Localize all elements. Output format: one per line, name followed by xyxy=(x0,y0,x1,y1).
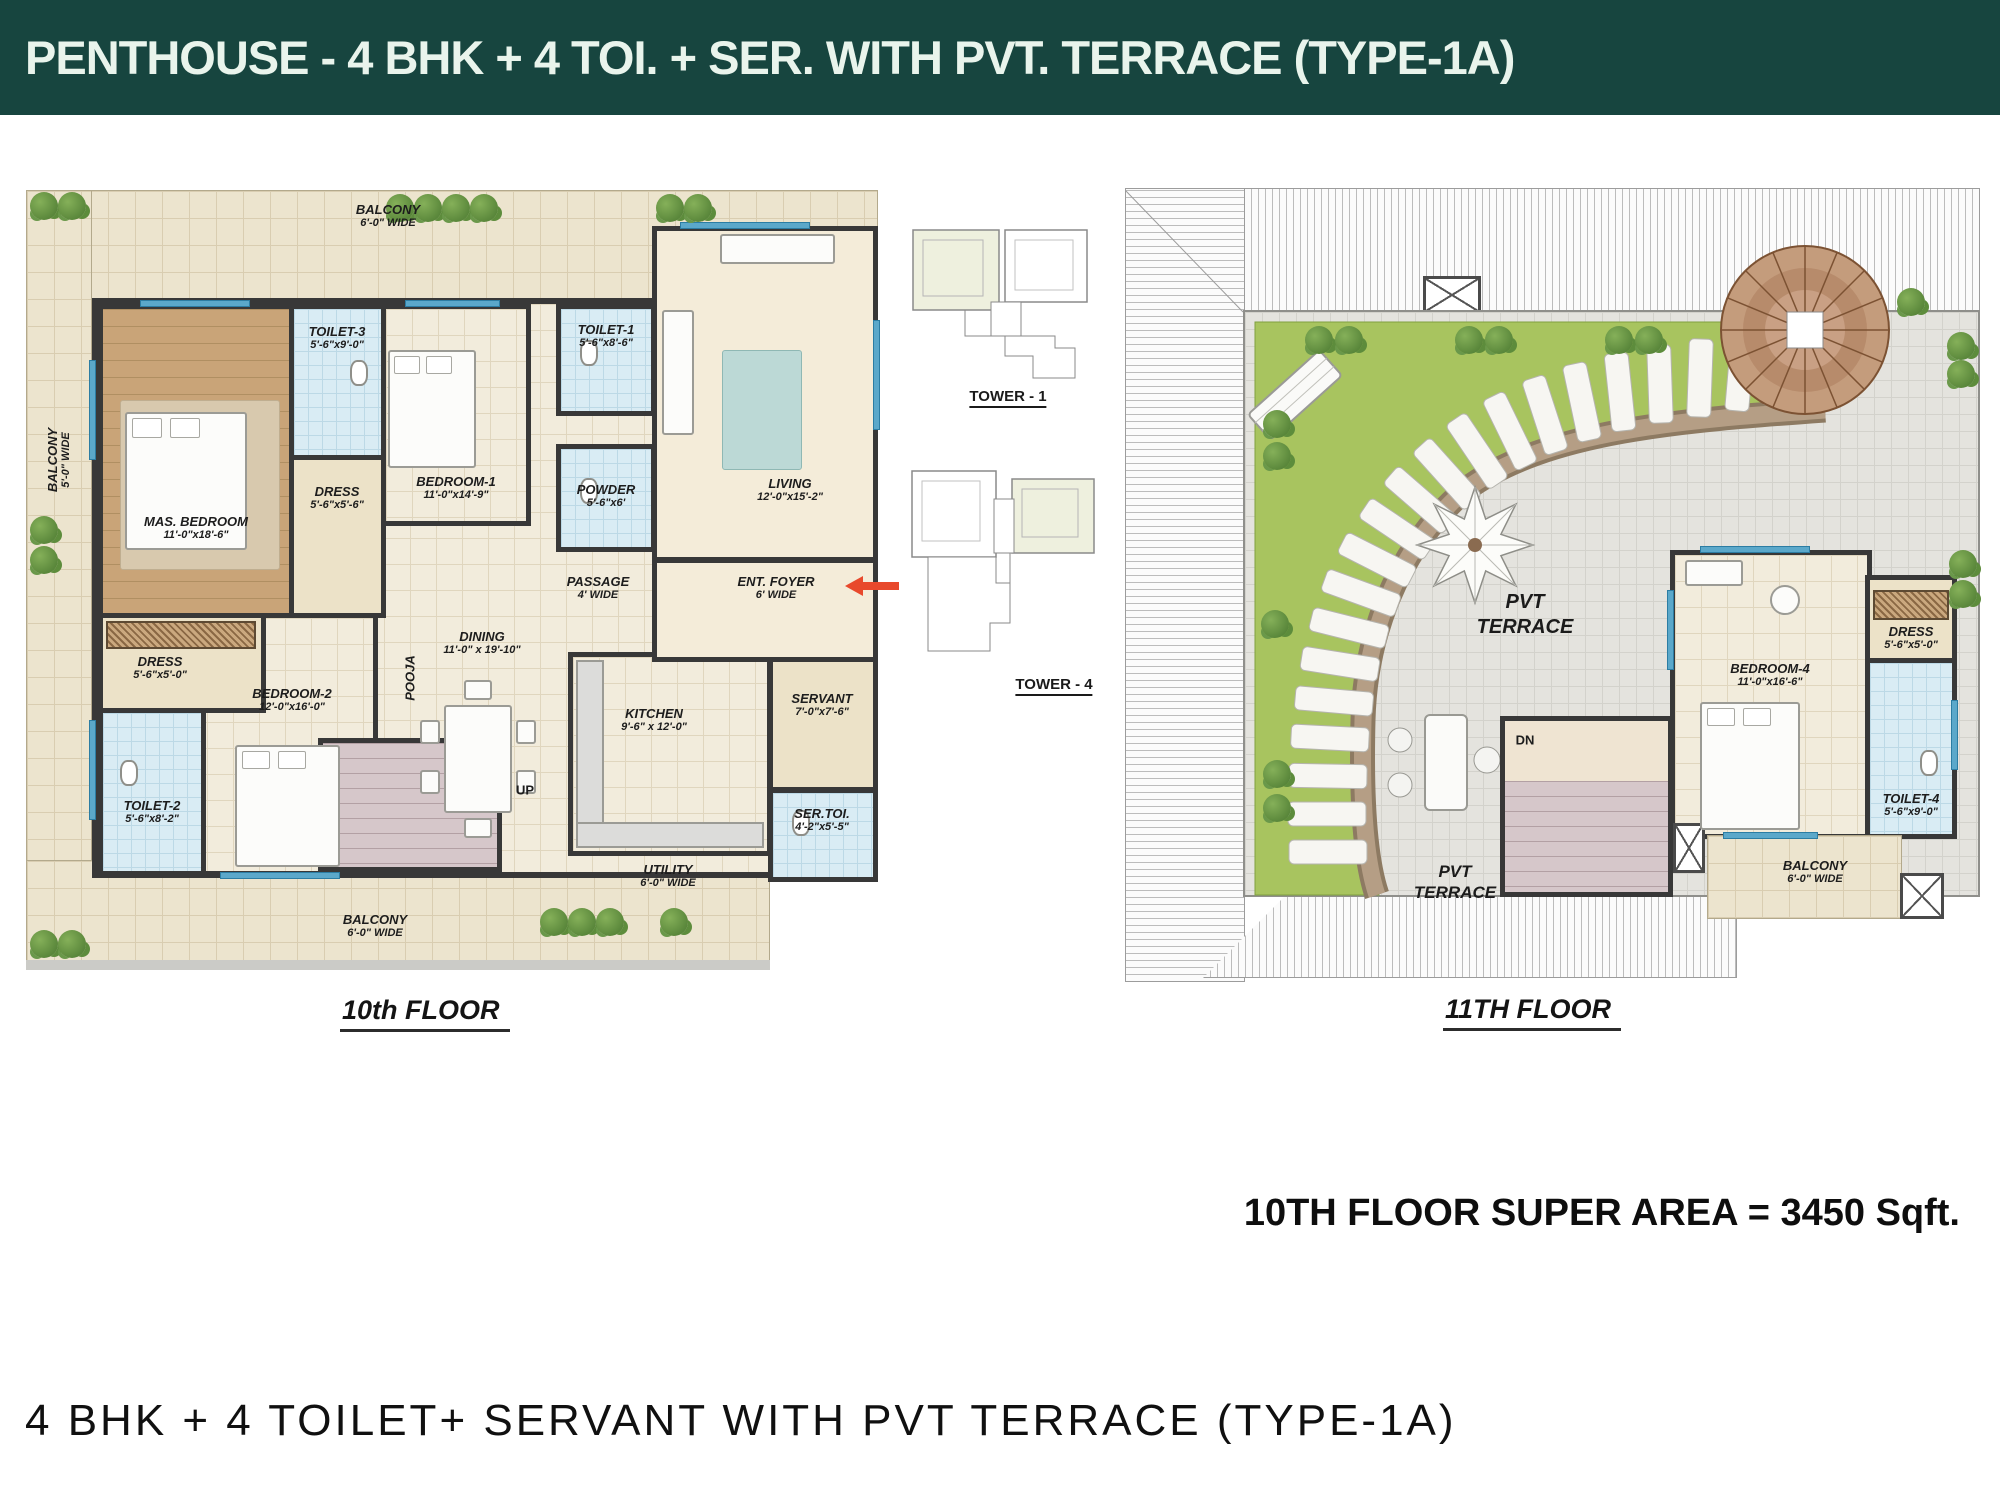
dining-chair xyxy=(420,770,440,794)
label-pvt-terrace-bottom: PVTTERRACE xyxy=(1414,861,1496,904)
room-servant-toilet xyxy=(768,788,878,882)
pillow xyxy=(132,418,162,438)
pillow xyxy=(426,356,452,374)
room-toilet2 xyxy=(98,708,206,876)
plant-icon xyxy=(470,194,498,222)
plant-icon xyxy=(1305,326,1333,354)
plant-icon xyxy=(30,192,58,220)
round-table xyxy=(1770,585,1800,615)
window xyxy=(89,720,96,820)
spiral-deck xyxy=(1721,246,1889,414)
balcony-left xyxy=(26,190,92,962)
plant-icon xyxy=(568,908,596,936)
label-dress2: DRESS5'-6"x5'-0" xyxy=(133,654,187,682)
plant-icon xyxy=(1263,410,1291,438)
pillow xyxy=(394,356,420,374)
plant-icon xyxy=(596,908,624,936)
plant-icon xyxy=(58,930,86,958)
pillow xyxy=(1743,708,1771,726)
sofa xyxy=(1685,560,1743,586)
label-dress4: DRESS5'-6"x5'-0" xyxy=(1884,624,1938,652)
window xyxy=(1723,832,1818,839)
wardrobe-hatch xyxy=(1873,590,1949,620)
plant-icon xyxy=(1897,288,1925,316)
window xyxy=(1667,590,1674,670)
label-balcony-left: BALCONY5'-0" WIDE xyxy=(45,428,73,492)
plant-icon xyxy=(1263,442,1291,470)
label-utility: UTILITY6'-0" WIDE xyxy=(640,862,696,890)
label-tower4: TOWER - 4 xyxy=(1015,676,1092,696)
plant-icon xyxy=(1949,580,1977,608)
label-pooja: POOJA xyxy=(402,655,417,701)
label-bedroom1: BEDROOM-111'-0"x14'-9" xyxy=(416,474,495,502)
plant-icon xyxy=(684,194,712,222)
dining-chair xyxy=(464,818,492,838)
label-pvt-terrace-center: PVTTERRACE xyxy=(1477,590,1574,640)
label-tower1: TOWER - 1 xyxy=(969,388,1046,408)
header-banner: PENTHOUSE - 4 BHK + 4 TOI. + SER. WITH P… xyxy=(0,0,2000,115)
label-balcony-top: BALCONY6'-0" WIDE xyxy=(356,202,420,230)
label-balcony-11th: BALCONY6'-0" WIDE xyxy=(1783,858,1847,886)
room-toilet1 xyxy=(556,304,656,416)
dining-chair xyxy=(420,720,440,744)
plant-icon xyxy=(58,192,86,220)
shaft-right xyxy=(1900,873,1944,919)
shaft-left xyxy=(1673,823,1705,873)
window xyxy=(1700,546,1810,553)
floor-plan-11th: DN PVTTERRACE PVTTERRACE BEDROOM-411'-0"… xyxy=(1125,160,1980,1005)
plant-icon xyxy=(656,194,684,222)
plant-icon xyxy=(1947,332,1975,360)
caption-11th-floor: 11TH FLOOR xyxy=(1443,994,1621,1031)
toilet-fixture xyxy=(1920,750,1938,776)
plant-icon xyxy=(660,908,688,936)
room-dress-master xyxy=(289,455,386,618)
label-up: UP xyxy=(516,783,534,798)
label-bedroom4: BEDROOM-411'-0"x16'-6" xyxy=(1730,661,1809,689)
pillow xyxy=(1707,708,1735,726)
toilet-fixture xyxy=(350,360,368,386)
plant-icon xyxy=(1263,794,1291,822)
plant-icon xyxy=(30,546,58,574)
plant-icon xyxy=(1261,610,1289,638)
label-servant: SERVANT7'-0"x7'-6" xyxy=(791,691,852,719)
plant-icon xyxy=(30,930,58,958)
label-powder: POWDER5'-6"x6' xyxy=(577,482,636,510)
terrace-table-set xyxy=(1388,715,1500,810)
plant-icon xyxy=(1455,326,1483,354)
wardrobe-hatch xyxy=(106,621,256,649)
plant-icon xyxy=(1949,550,1977,578)
plant-icon xyxy=(1605,326,1633,354)
label-master-bedroom: MAS. BEDROOM11'-0"x18'-6" xyxy=(144,514,248,542)
plant-icon xyxy=(442,194,470,222)
label-bedroom2: BEDROOM-212'-0"x16'-0" xyxy=(252,686,331,714)
plant-icon xyxy=(1335,326,1363,354)
plant-icon xyxy=(1947,360,1975,388)
label-toilet1: TOILET-15'-6"x8'-6" xyxy=(578,322,635,350)
plant-icon xyxy=(1485,326,1513,354)
toilet-fixture xyxy=(120,760,138,786)
staircase-down xyxy=(1505,781,1668,892)
label-ent-foyer: ENT. FOYER6' WIDE xyxy=(737,574,814,602)
sofa xyxy=(662,310,694,435)
window xyxy=(220,872,340,879)
dining-chair xyxy=(464,680,492,700)
plant-icon xyxy=(540,908,568,936)
keyplan-tower1 xyxy=(905,220,1095,388)
plant-icon xyxy=(1263,760,1291,788)
label-toilet3: TOILET-35'-6"x9'-0" xyxy=(309,324,366,352)
label-dining: DINING11'-0" x 19'-10" xyxy=(443,629,520,657)
window xyxy=(873,320,880,430)
room-servant xyxy=(768,652,878,792)
plan-shadow xyxy=(26,960,770,970)
dining-chair xyxy=(516,720,536,744)
keyplan-tower4 xyxy=(898,455,1102,667)
pillow xyxy=(278,751,306,769)
label-passage: PASSAGE4' WIDE xyxy=(567,574,630,602)
label-dn: DN xyxy=(1516,733,1535,748)
pillow xyxy=(242,751,270,769)
super-area-text: 10TH FLOOR SUPER AREA = 3450 Sqft. xyxy=(1244,1192,1960,1235)
umbrella xyxy=(1417,487,1533,603)
page: { "header": { "title": "PENTHOUSE - 4 BH… xyxy=(0,0,2000,1500)
window xyxy=(680,222,810,229)
kitchen-counter xyxy=(576,822,764,848)
kitchen-counter xyxy=(576,660,604,848)
plant-icon xyxy=(1635,326,1663,354)
caption-10th-floor: 10th FLOOR xyxy=(340,995,510,1032)
floor-plan-10th: BALCONY6'-0" WIDE BALCONY5'-0" WIDE MAS.… xyxy=(20,160,880,1005)
window xyxy=(1951,700,1958,770)
window xyxy=(140,300,250,307)
living-rug xyxy=(722,350,802,470)
window xyxy=(405,300,500,307)
pillow xyxy=(170,418,200,438)
label-toilet2: TOILET-25'-6"x8'-2" xyxy=(124,798,181,826)
label-dress-master: DRESS5'-6"x5'-6" xyxy=(310,484,364,512)
plant-icon xyxy=(30,516,58,544)
entrance-arrow-icon xyxy=(845,576,899,596)
label-kitchen: KITCHEN9'-6" x 12'-0" xyxy=(621,706,687,734)
page-title: PENTHOUSE - 4 BHK + 4 TOI. + SER. WITH P… xyxy=(25,0,1514,115)
label-servant-toilet: SER.TOI.4'-2"x5'-5" xyxy=(794,806,849,834)
roof-miter-line xyxy=(1125,190,1243,312)
dining-table xyxy=(444,705,512,813)
sofa xyxy=(720,234,835,264)
bottom-subtitle: 4 BHK + 4 TOILET+ SERVANT WITH PVT TERRA… xyxy=(25,1396,1457,1446)
window xyxy=(89,360,96,460)
label-balcony-bottom: BALCONY6'-0" WIDE xyxy=(343,912,407,940)
label-toilet4: TOILET-45'-6"x9'-0" xyxy=(1883,791,1940,819)
label-living: LIVING12'-0"x15'-2" xyxy=(757,476,823,504)
